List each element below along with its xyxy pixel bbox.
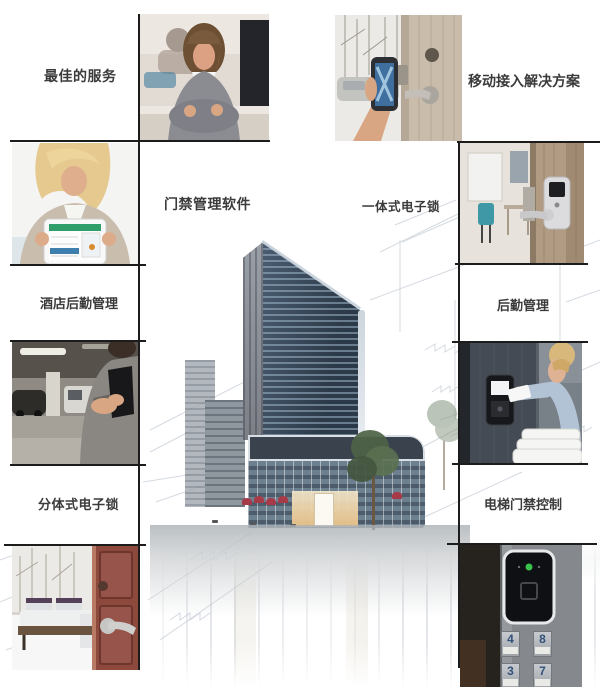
plaza-bench bbox=[212, 520, 218, 523]
elevator-button-label: 8 bbox=[534, 632, 551, 647]
atrium-entrance bbox=[314, 493, 334, 527]
separator-line-h1-right bbox=[457, 141, 600, 143]
parking-garage-woman-photo bbox=[12, 342, 138, 464]
hotel-door-lock-photo bbox=[460, 143, 584, 263]
businesswoman-office-photo bbox=[140, 14, 269, 141]
separator-line-h5-right bbox=[447, 543, 597, 545]
elevator-button-8: 8 bbox=[533, 631, 552, 657]
elevator-reader-panel-photo: 4 8 3 7 bbox=[460, 545, 582, 687]
label-best-service: 最佳的服务 bbox=[44, 66, 117, 86]
housekeeper-keycard-photo bbox=[460, 343, 582, 464]
elevator-button-7: 7 bbox=[533, 663, 552, 687]
cafe-umbrella bbox=[242, 498, 252, 505]
elevator-button-3: 3 bbox=[501, 663, 520, 687]
label-elevator-access: 电梯门禁控制 bbox=[484, 494, 562, 513]
cafe-umbrella bbox=[278, 496, 288, 503]
tower-glass-face bbox=[263, 242, 360, 442]
bedroom-door-lock-photo bbox=[12, 546, 138, 670]
label-split-lock: 分体式电子锁 bbox=[38, 494, 119, 513]
separator-line-h3-right bbox=[452, 341, 588, 343]
tower-side-face bbox=[243, 242, 263, 440]
podium-block bbox=[205, 400, 245, 507]
woman-tablet-software-photo bbox=[12, 143, 138, 264]
cafe-umbrella bbox=[266, 498, 276, 505]
label-access-software: 门禁管理软件 bbox=[164, 194, 251, 214]
label-integrated-lock: 一体式电子锁 bbox=[362, 196, 440, 215]
separator-line-h4-right bbox=[452, 463, 588, 465]
elevator-button-4: 4 bbox=[501, 631, 520, 657]
separator-line-h2-left bbox=[10, 264, 146, 266]
elevator-button-label: 4 bbox=[502, 632, 519, 647]
elevator-button-label: 3 bbox=[502, 664, 519, 679]
tree bbox=[345, 430, 405, 530]
separator-line-h3-left bbox=[10, 340, 146, 342]
separator-line-vertical-right bbox=[458, 141, 460, 668]
label-mobile-access: 移动接入解决方案 bbox=[468, 71, 580, 91]
label-hotel-backoffice: 酒店后勤管理 bbox=[40, 293, 118, 312]
facade-ribbon bbox=[358, 310, 365, 445]
separator-line-h4-left bbox=[10, 464, 146, 466]
card-reader bbox=[504, 551, 554, 623]
elevator-button-label: 7 bbox=[534, 664, 551, 679]
plaza-ground bbox=[150, 525, 470, 617]
infographic-hotel-access-solutions: 4 8 3 7 最佳的服务 移动接入解决方案 门禁管理软件 一体式电子锁 酒店后… bbox=[0, 0, 600, 687]
office-building-render bbox=[150, 230, 470, 630]
cafe-umbrella bbox=[254, 496, 264, 503]
separator-line-vertical-left bbox=[138, 14, 140, 670]
separator-line-h5-left bbox=[4, 544, 146, 546]
separator-line-h1-left bbox=[10, 140, 270, 142]
label-backoffice: 后勤管理 bbox=[497, 295, 549, 314]
phone-unlock-door-photo bbox=[335, 15, 462, 141]
separator-line-h2-right bbox=[455, 263, 588, 265]
